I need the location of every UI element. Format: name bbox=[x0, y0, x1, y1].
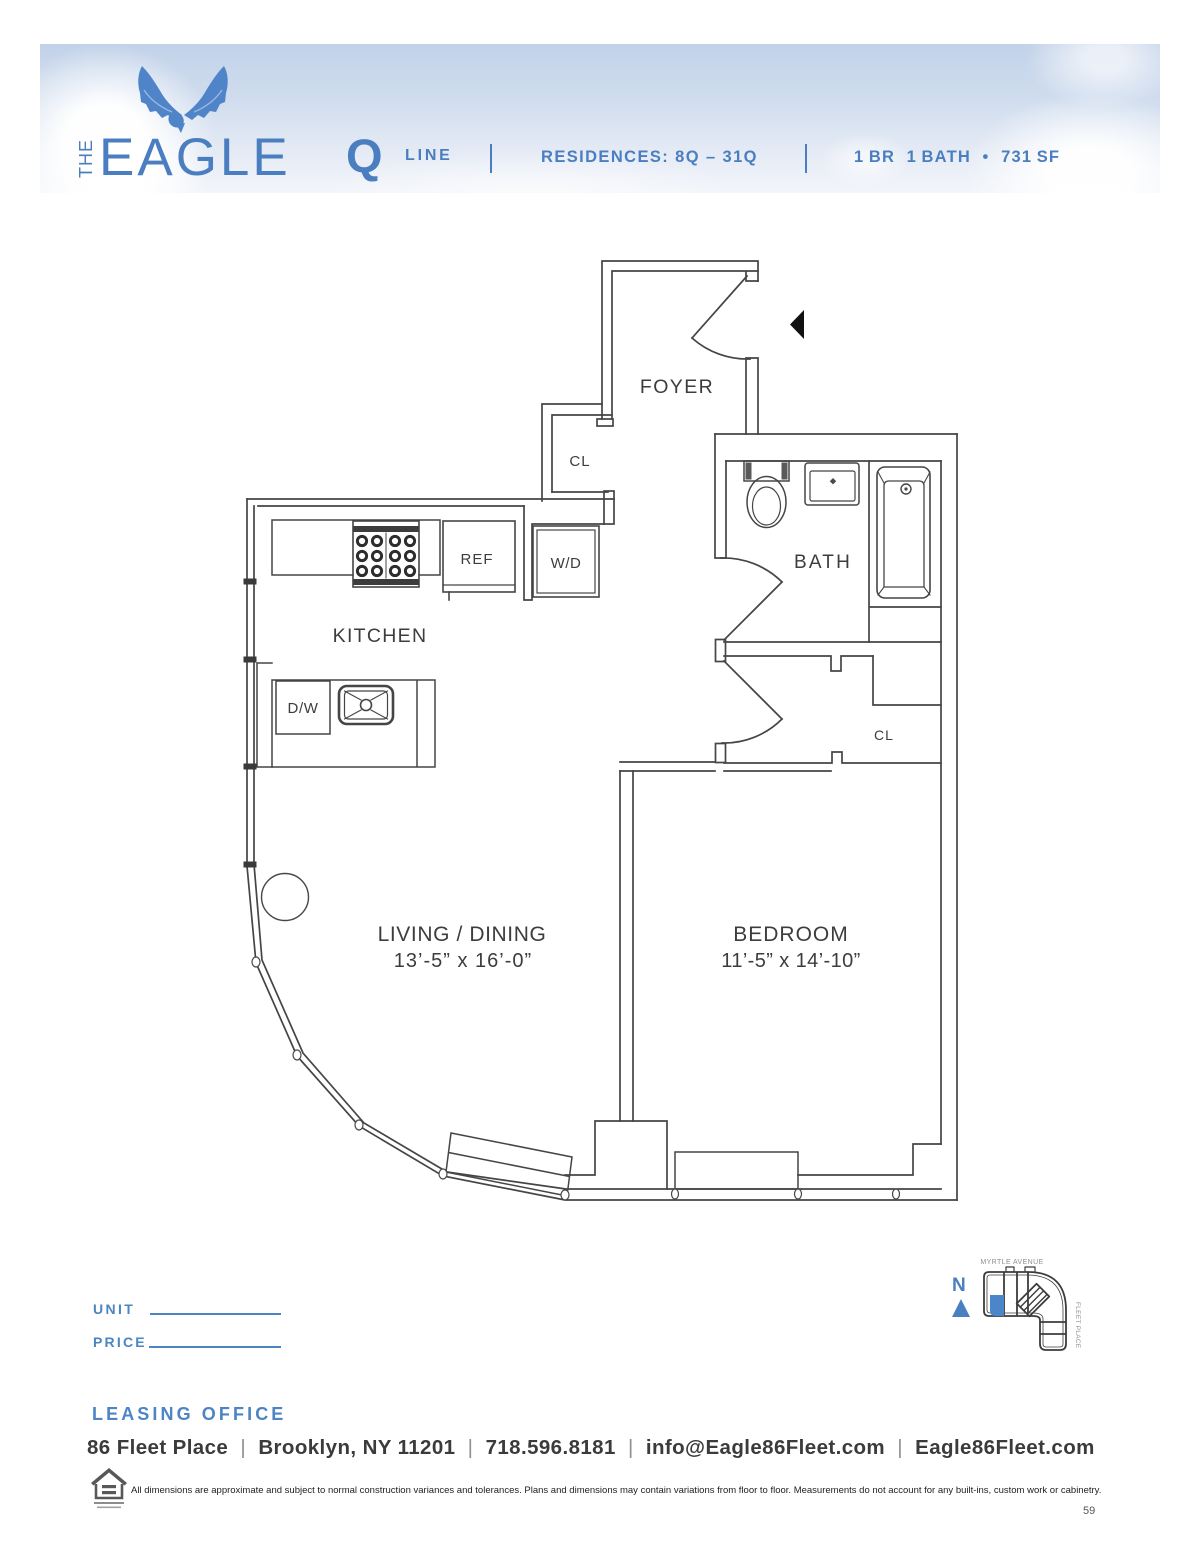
svg-text:KITCHEN: KITCHEN bbox=[333, 625, 428, 647]
svg-text:LIVING / DINING: LIVING / DINING bbox=[378, 923, 547, 946]
svg-text:FLEET PLACE: FLEET PLACE bbox=[1074, 1302, 1081, 1349]
svg-text:CL: CL bbox=[569, 453, 590, 470]
svg-text:BEDROOM: BEDROOM bbox=[733, 923, 849, 946]
svg-text:CL: CL bbox=[874, 727, 894, 743]
svg-text:FOYER: FOYER bbox=[640, 376, 714, 398]
svg-text:BATH: BATH bbox=[794, 552, 852, 573]
svg-text:REF: REF bbox=[461, 551, 494, 568]
svg-text:MYRTLE AVENUE: MYRTLE AVENUE bbox=[980, 1259, 1043, 1266]
svg-text:13’-5” x 16’-0”: 13’-5” x 16’-0” bbox=[394, 950, 532, 972]
svg-text:11’-5” x 14’-10”: 11’-5” x 14’-10” bbox=[721, 950, 860, 972]
svg-text:W/D: W/D bbox=[551, 555, 582, 572]
svg-text:D/W: D/W bbox=[288, 700, 319, 717]
